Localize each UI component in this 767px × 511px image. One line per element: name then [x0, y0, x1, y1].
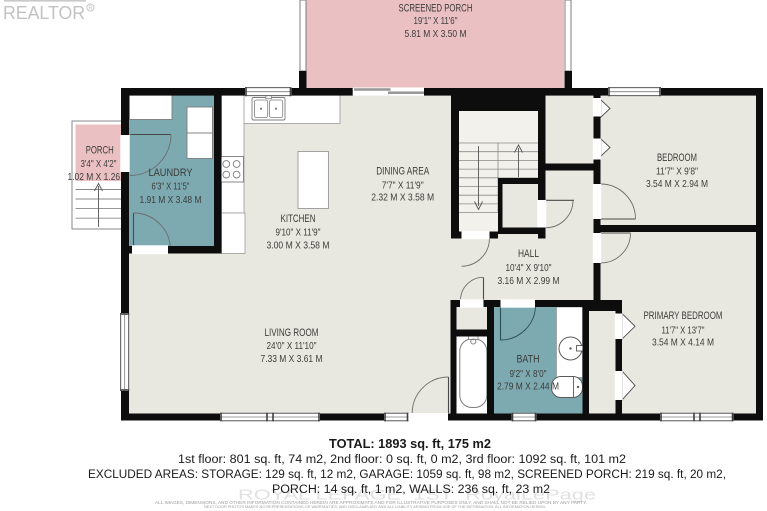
svg-text:3.54 M X 2.94 M: 3.54 M X 2.94 M	[646, 178, 708, 190]
svg-text:3.16 M X 2.99 M: 3.16 M X 2.99 M	[498, 275, 560, 287]
svg-text:6'3" X 11'5": 6'3" X 11'5"	[152, 181, 190, 193]
svg-text:R: R	[88, 6, 93, 12]
svg-text:PORCH: PORCH	[86, 145, 114, 157]
svg-text:9'10" X 11'9": 9'10" X 11'9"	[276, 226, 321, 238]
svg-text:11'7" X 13'7": 11'7" X 13'7"	[662, 324, 705, 336]
svg-text:10'4" X 9'10": 10'4" X 9'10"	[506, 262, 552, 274]
svg-text:7.33 M X 3.61 M: 7.33 M X 3.61 M	[261, 353, 323, 365]
svg-text:PRIMARY BEDROOM: PRIMARY BEDROOM	[644, 310, 723, 322]
svg-text:2.79 M X 2.44 M: 2.79 M X 2.44 M	[497, 380, 559, 392]
svg-text:EXCLUDED AREAS: STORAGE: 129 s: EXCLUDED AREAS: STORAGE: 129 sq. ft, 12 …	[88, 467, 726, 481]
svg-text:24'0" X 11'10": 24'0" X 11'10"	[267, 340, 317, 352]
svg-text:SCREENED PORCH: SCREENED PORCH	[399, 2, 473, 14]
svg-text:BATH: BATH	[517, 353, 540, 365]
svg-text:LIVING ROOM: LIVING ROOM	[265, 327, 319, 339]
svg-text:2.32 M X 3.58 M: 2.32 M X 3.58 M	[371, 191, 434, 203]
svg-text:HALL: HALL	[518, 248, 539, 260]
svg-text:5.81 M X 3.50 M: 5.81 M X 3.50 M	[405, 28, 467, 40]
svg-text:7'7" X 11'9": 7'7" X 11'9"	[382, 179, 424, 191]
svg-text:KITCHEN: KITCHEN	[281, 213, 316, 225]
svg-text:3.54 M X 4.14 M: 3.54 M X 4.14 M	[652, 336, 714, 348]
svg-text:9'2" X 8'0": 9'2" X 8'0"	[510, 368, 547, 380]
svg-text:TOTAL: 1893 sq. ft, 175 m2: TOTAL: 1893 sq. ft, 175 m2	[329, 437, 491, 451]
svg-text:11'7" X 9'8": 11'7" X 9'8"	[656, 165, 698, 177]
svg-text:3.00 M X 3.58 M: 3.00 M X 3.58 M	[267, 240, 330, 252]
svg-text:BEDROOM: BEDROOM	[657, 152, 697, 164]
svg-text:1.02 M X 1.26 M: 1.02 M X 1.26 M	[68, 171, 130, 183]
svg-text:3'4" X 4'2": 3'4" X 4'2"	[81, 158, 117, 170]
svg-text:PORCH: 14 sq. ft, 1 m2, WALLS:: PORCH: 14 sq. ft, 1 m2, WALLS: 236 sq. f…	[272, 482, 550, 496]
svg-text:19'1" X 11'6": 19'1" X 11'6"	[414, 15, 458, 27]
svg-text:DINING AREA: DINING AREA	[376, 166, 429, 178]
svg-text:1st floor: 801 sq. ft, 74 m2,: 1st floor: 801 sq. ft, 74 m2, 2nd floor:…	[178, 452, 626, 466]
svg-text:LAUNDRY: LAUNDRY	[149, 167, 194, 179]
svg-text:REALTOR: REALTOR	[3, 2, 85, 23]
svg-text:NEXT DOOR PHOTOS MAKES NO REPR: NEXT DOOR PHOTOS MAKES NO REPRESENTATION…	[204, 504, 546, 509]
svg-text:1.91 M X 3.48 M: 1.91 M X 3.48 M	[140, 194, 202, 206]
